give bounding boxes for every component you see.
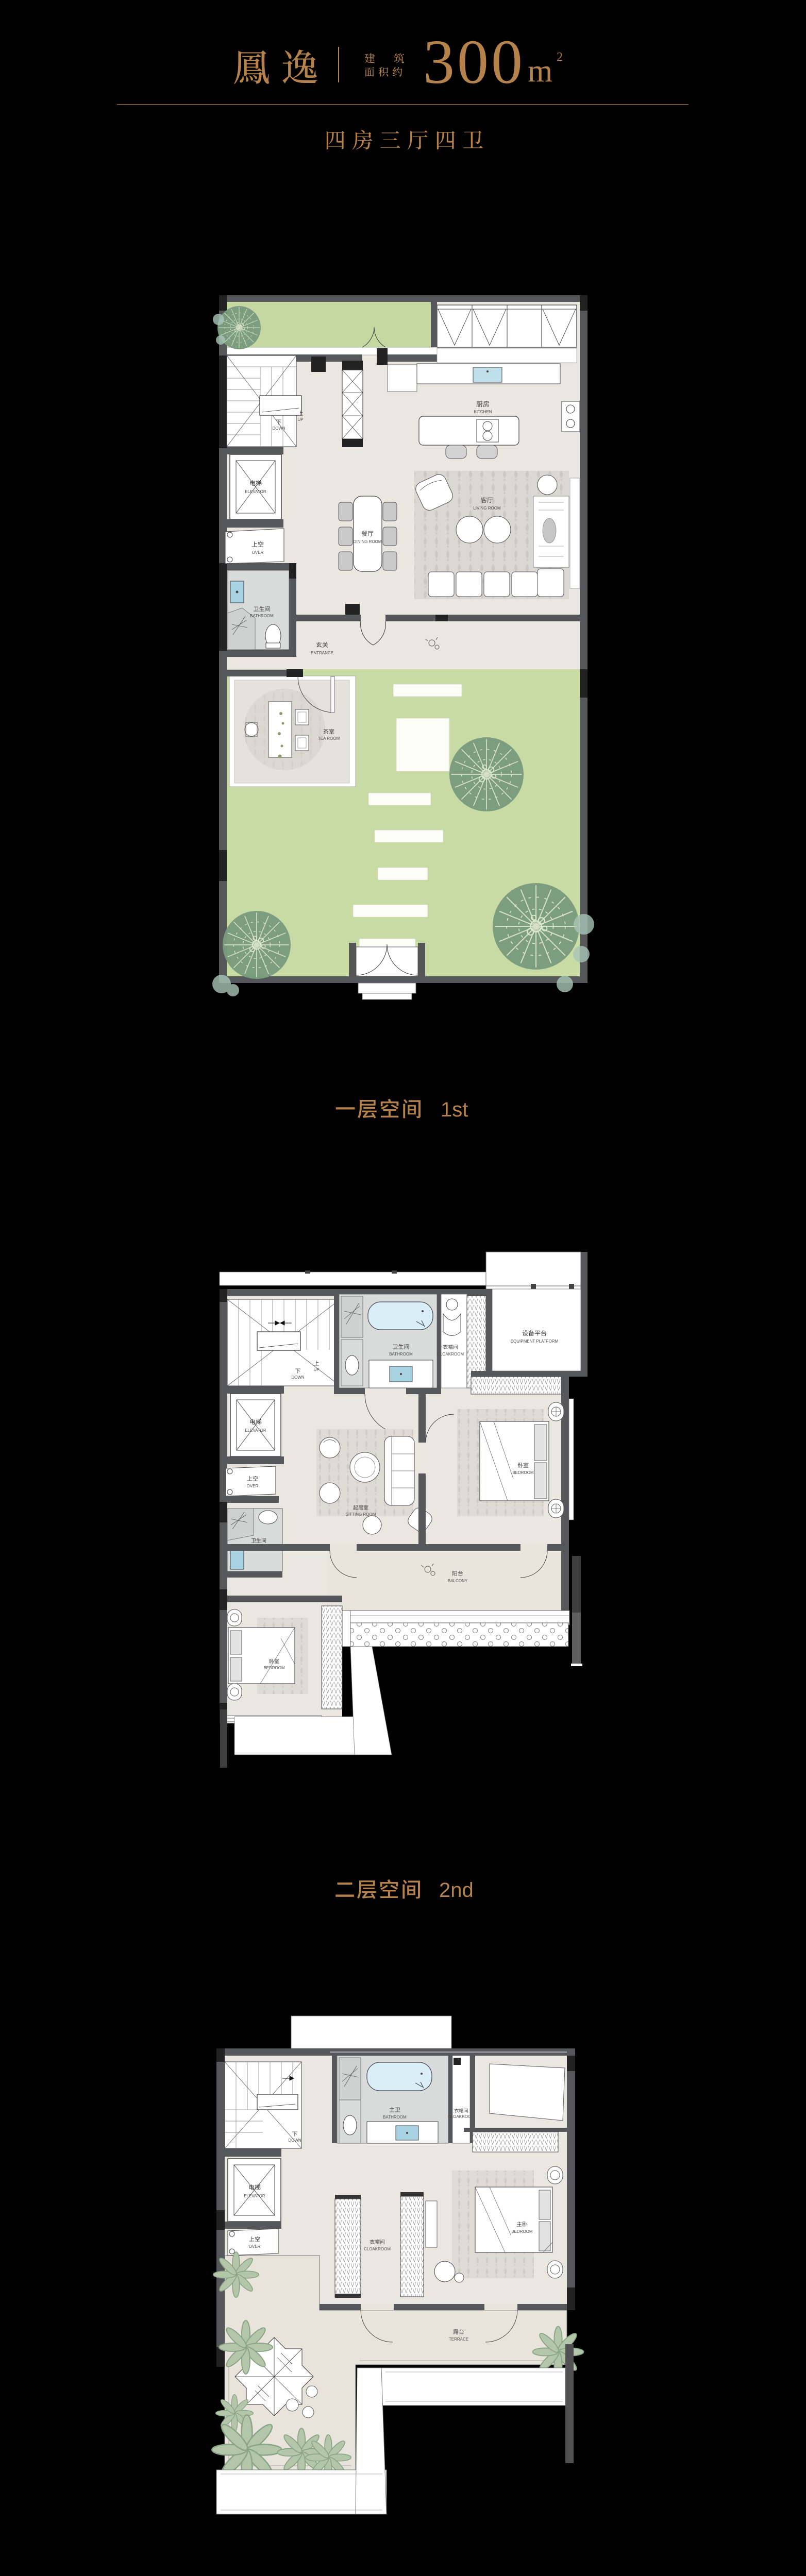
svg-text:DOWN: DOWN — [291, 1375, 305, 1380]
svg-text:EQUIPMENT PLATFORM: EQUIPMENT PLATFORM — [511, 1339, 559, 1344]
svg-text:2: 2 — [557, 50, 563, 64]
svg-text:KITCHEN: KITCHEN — [474, 410, 492, 414]
svg-text:DOWN: DOWN — [272, 426, 286, 431]
svg-text:UP: UP — [297, 417, 303, 422]
svg-text:BATHROOM: BATHROOM — [389, 1352, 413, 1357]
svg-text:DOWN: DOWN — [288, 2138, 301, 2143]
svg-text:CLOAKROOM: CLOAKROOM — [437, 1352, 464, 1357]
svg-text:UP: UP — [313, 1367, 319, 1372]
svg-text:BEDROOM: BEDROOM — [512, 1470, 534, 1475]
svg-text:CLOAKROOM: CLOAKROOM — [364, 2247, 391, 2251]
svg-text:ELEVATOR: ELEVATOR — [245, 1428, 266, 1433]
svg-text:SITTING ROOM: SITTING ROOM — [346, 1512, 376, 1517]
svg-text:300: 300 — [423, 27, 525, 97]
svg-text:OVER: OVER — [252, 550, 264, 555]
svg-text:LIVING ROOM: LIVING ROOM — [473, 506, 501, 511]
svg-text:BATHROOM: BATHROOM — [383, 2115, 407, 2120]
svg-text:OVER: OVER — [247, 1484, 259, 1488]
svg-text:BALCONY: BALCONY — [448, 1579, 468, 1583]
svg-text:TERRACE: TERRACE — [449, 2337, 468, 2342]
svg-text:DINING ROOM: DINING ROOM — [353, 539, 381, 544]
svg-text:ELEVATOR: ELEVATOR — [245, 489, 266, 494]
svg-text:m: m — [528, 54, 552, 89]
svg-text:1st: 1st — [441, 1098, 468, 1121]
svg-text:BEDROOM: BEDROOM — [511, 2229, 533, 2234]
svg-text:ENTRANCE: ENTRANCE — [311, 651, 333, 655]
svg-text:BATHROOM: BATHROOM — [250, 614, 274, 618]
svg-text:2nd: 2nd — [439, 1879, 474, 1902]
svg-text:ELEVATOR: ELEVATOR — [244, 2194, 265, 2198]
svg-text:BEDROOM: BEDROOM — [263, 1666, 285, 1670]
svg-text:TEA ROOM: TEA ROOM — [318, 736, 340, 741]
svg-text:OVER: OVER — [249, 2244, 261, 2249]
